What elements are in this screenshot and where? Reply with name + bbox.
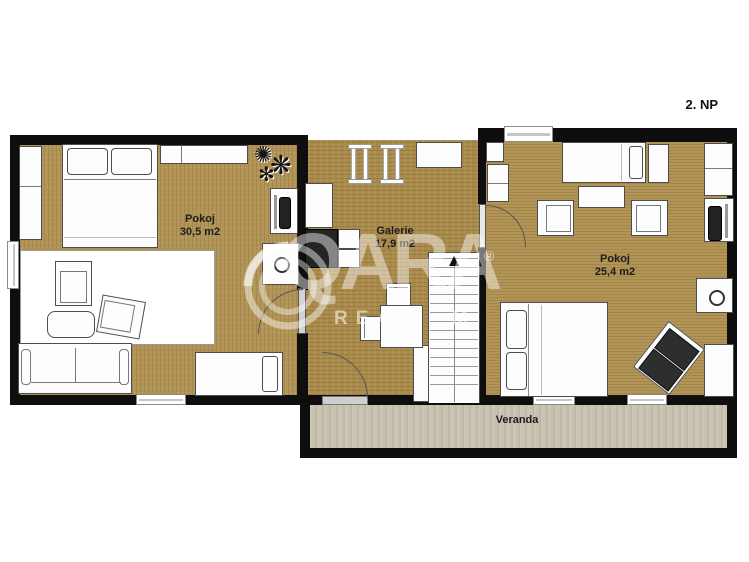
room-name: Veranda bbox=[465, 414, 569, 427]
armchair-left-room-2 bbox=[96, 294, 146, 339]
chair-galerie-top bbox=[386, 283, 411, 306]
armchair-left-room-1 bbox=[55, 261, 92, 306]
room-label-pokoj-left: Pokoj 30,5 m2 bbox=[150, 213, 250, 239]
coffee-table-right-room bbox=[578, 186, 625, 208]
door-leaf-right-room bbox=[479, 204, 486, 248]
wardrobe-right-room bbox=[704, 143, 733, 196]
room-label-galerie: Galerie 17,9 m2 bbox=[345, 225, 445, 251]
cabinet-right-room-top-1 bbox=[486, 142, 504, 162]
window-right-room-bottom-2 bbox=[627, 394, 667, 405]
chair-galerie-left bbox=[360, 316, 381, 341]
side-table-right-room-top bbox=[648, 144, 669, 183]
cabinet-galerie-top bbox=[416, 142, 462, 168]
daybed-left-room bbox=[195, 352, 283, 396]
room-area: 17,9 m2 bbox=[345, 238, 445, 251]
plant: ✺ ❋ ✻ bbox=[252, 140, 298, 188]
wall-mid-right-upper bbox=[478, 128, 486, 204]
sofa-left-room bbox=[18, 343, 132, 394]
sideboard-left-room bbox=[160, 145, 248, 164]
galerie-railing-2 bbox=[380, 144, 404, 184]
cabinet-right-room-bottom bbox=[704, 344, 734, 397]
room-area: 25,4 m2 bbox=[565, 266, 665, 279]
floor-level-label: 2. NP bbox=[650, 97, 718, 112]
room-area: 30,5 m2 bbox=[150, 226, 250, 239]
desk-right-room bbox=[704, 198, 734, 242]
armchair-right-room-1 bbox=[537, 200, 574, 236]
room-name: Galerie bbox=[345, 225, 445, 238]
window-left-room-bottom bbox=[136, 394, 186, 405]
room-label-pokoj-right: Pokoj 25,4 m2 bbox=[565, 253, 665, 279]
double-bed-right-room bbox=[500, 302, 608, 397]
single-bed-right-room bbox=[562, 142, 646, 183]
cabinet-galerie-side bbox=[305, 183, 333, 228]
side-table-lamp-left-room bbox=[262, 243, 299, 285]
double-bed-left-room bbox=[62, 144, 158, 248]
veranda-wall-bottom bbox=[300, 448, 737, 458]
room-label-veranda: Veranda bbox=[465, 414, 569, 427]
floorplan-canvas: 2. NP bbox=[0, 0, 749, 562]
cabinet-right-room-top-2 bbox=[487, 164, 509, 202]
wardrobe-left-room bbox=[19, 146, 42, 240]
desk-galerie bbox=[380, 305, 423, 348]
wall-mid-left-lower bbox=[297, 333, 308, 405]
coffee-table-left-room bbox=[47, 311, 95, 338]
window-left-wall bbox=[7, 241, 19, 289]
desk-left-room bbox=[270, 188, 298, 234]
window-right-room-top bbox=[504, 126, 553, 142]
staircase-up-arrow-icon bbox=[449, 256, 459, 266]
chimney bbox=[305, 229, 338, 268]
armchair-right-room-2 bbox=[631, 200, 668, 236]
galerie-railing-1 bbox=[348, 144, 372, 184]
staircase bbox=[428, 252, 480, 403]
side-table-lamp-right-room bbox=[696, 278, 733, 313]
chimney-cabinet-2 bbox=[338, 249, 360, 268]
room-name: Pokoj bbox=[565, 253, 665, 266]
room-name: Pokoj bbox=[150, 213, 250, 226]
